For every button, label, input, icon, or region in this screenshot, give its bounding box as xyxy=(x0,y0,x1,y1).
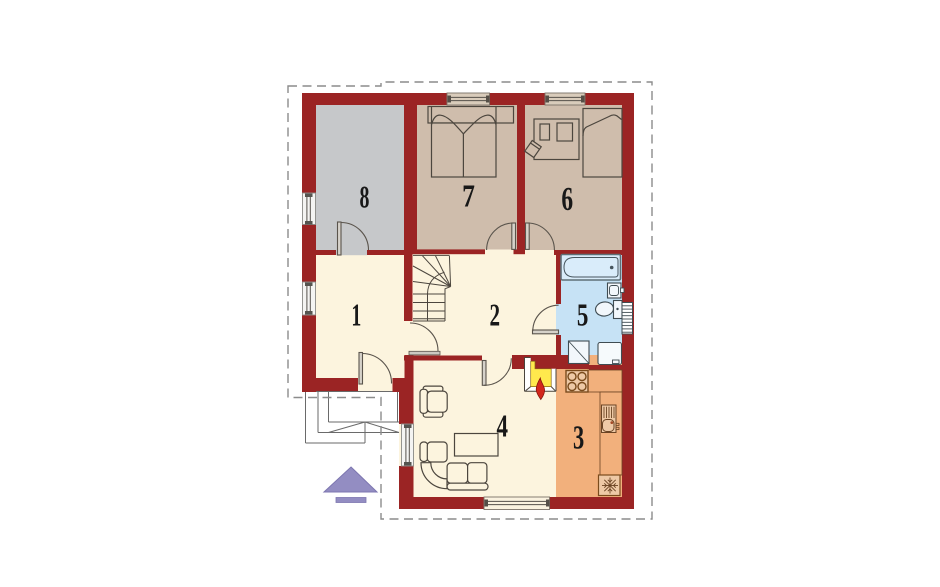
svg-text:3: 3 xyxy=(573,419,584,457)
svg-text:5: 5 xyxy=(577,298,589,334)
svg-text:2: 2 xyxy=(490,297,501,332)
svg-text:6: 6 xyxy=(561,181,573,218)
svg-text:8: 8 xyxy=(360,179,370,215)
svg-text:7: 7 xyxy=(462,179,475,214)
svg-text:1: 1 xyxy=(351,296,361,332)
svg-text:4: 4 xyxy=(497,409,509,445)
